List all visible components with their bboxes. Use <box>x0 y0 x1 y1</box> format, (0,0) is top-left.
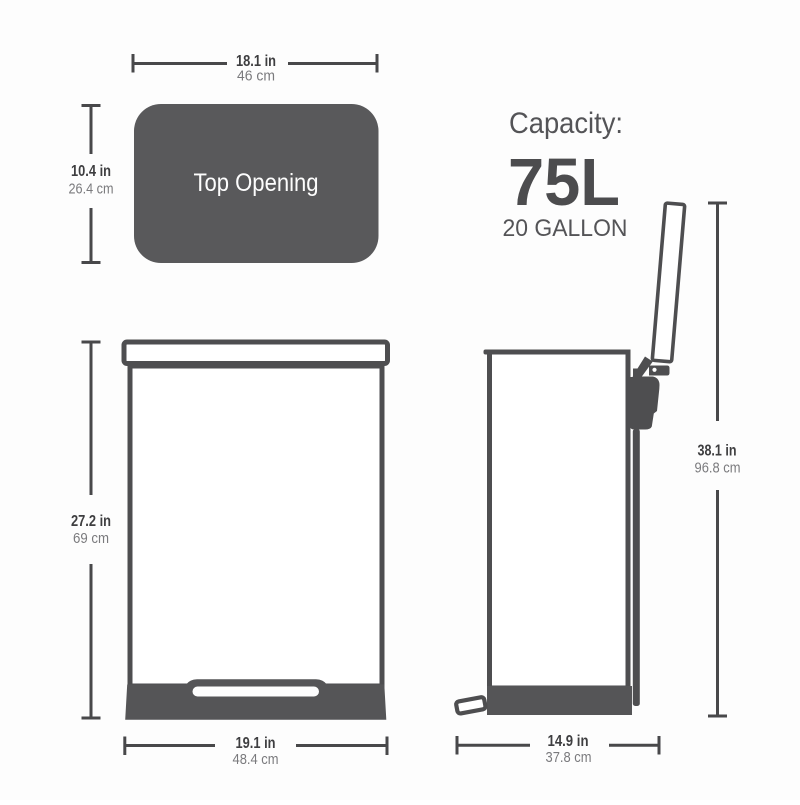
svg-text:18.1 in: 18.1 in <box>236 53 276 70</box>
svg-text:26.4 cm: 26.4 cm <box>69 182 114 198</box>
svg-text:27.2 in: 27.2 in <box>71 513 111 530</box>
svg-text:Top Opening: Top Opening <box>194 169 319 197</box>
svg-text:19.1 in: 19.1 in <box>236 735 276 752</box>
svg-text:69 cm: 69 cm <box>73 531 109 547</box>
svg-text:37.8 cm: 37.8 cm <box>546 750 592 766</box>
svg-text:20 GALLON: 20 GALLON <box>503 215 628 242</box>
svg-text:38.1 in: 38.1 in <box>698 443 737 460</box>
svg-text:48.4 cm: 48.4 cm <box>233 752 279 768</box>
svg-text:10.4 in: 10.4 in <box>71 163 111 180</box>
svg-text:96.8 cm: 96.8 cm <box>695 461 741 477</box>
svg-text:Capacity:: Capacity: <box>509 107 623 140</box>
svg-text:14.9 in: 14.9 in <box>548 733 589 750</box>
svg-text:75L: 75L <box>508 145 620 220</box>
svg-text:46 cm: 46 cm <box>237 69 275 85</box>
